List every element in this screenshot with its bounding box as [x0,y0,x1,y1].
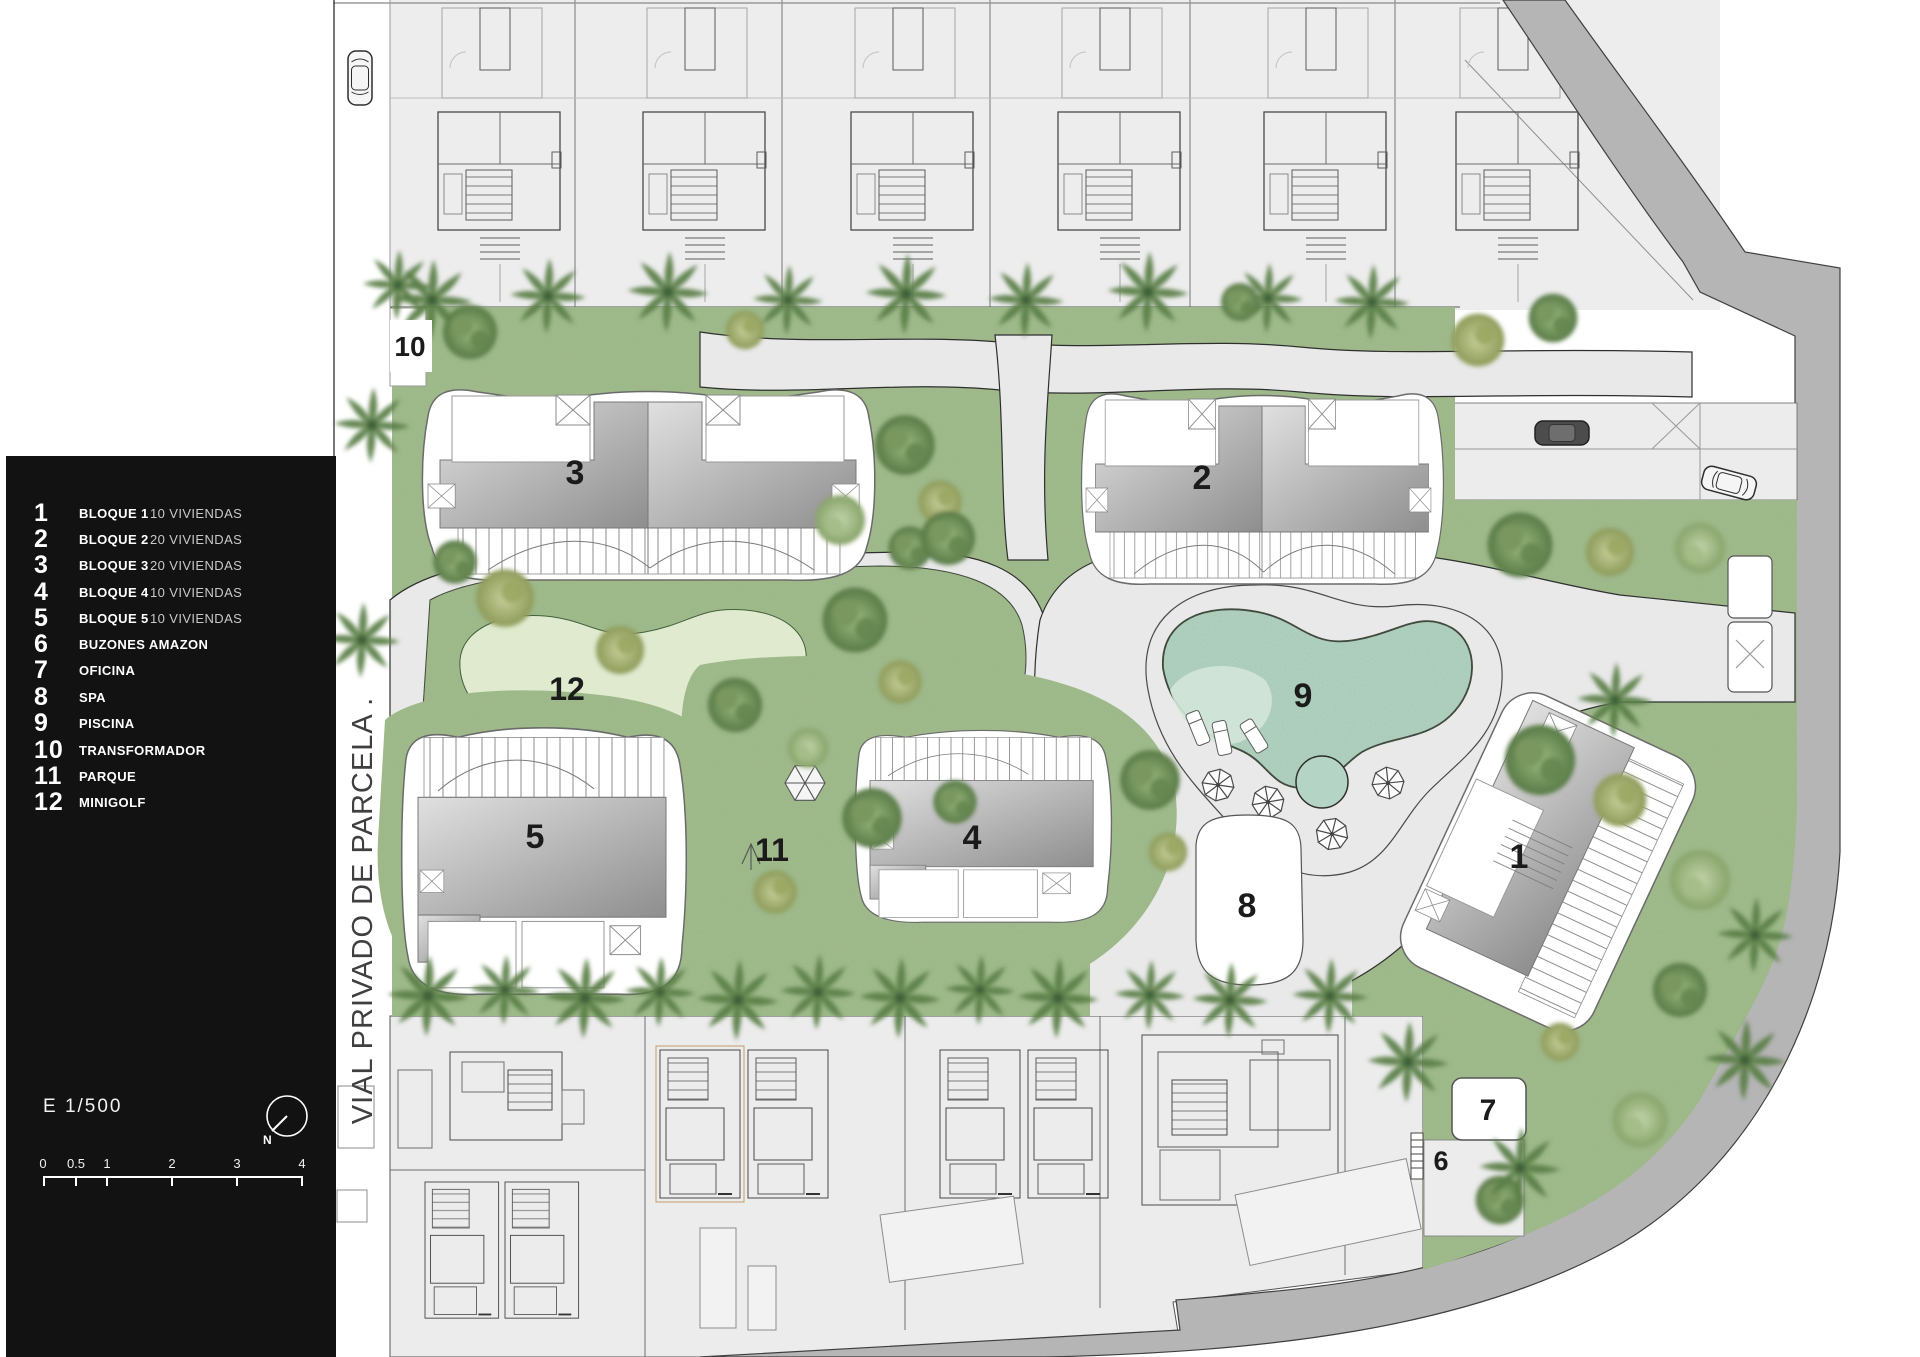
plan-label-transformador: 10 [394,331,425,362]
plan-label-block-3: 3 [566,454,585,492]
legend-label: BUZONES AMAZON [79,637,208,652]
legend-label: TRANSFORMADOR [79,743,206,758]
plan-label-parque: 11 [755,832,789,868]
legend-num: 12 [34,790,79,815]
legend-label: PISCINA [79,716,150,731]
legend-num: 1 [34,501,79,526]
plan-label-piscina: 9 [1294,677,1313,715]
legend-num: 3 [34,553,79,578]
scale-tick-label: 1 [94,1156,120,1171]
legend-num: 11 [34,764,79,789]
entrance-gate [1728,556,1772,692]
scale-text: E 1/500 [43,1096,123,1118]
plan-label-block-5: 5 [526,818,545,856]
legend-item-buzones: 6BUZONES AMAZON [34,631,208,658]
site-plan-page: 1 2 3 4 5 6 7 8 9 10 11 12 VIAL PRIVADO … [0,0,1920,1357]
legend-item-bloque-5: 5BLOQUE 510 VIVIENDAS [34,605,242,632]
plan-label-minigolf: 12 [549,671,585,707]
scale-bar: 0 0.5 1 2 3 4 [43,1156,311,1190]
plan-label-block-2: 2 [1193,459,1212,497]
legend-item-bloque-4: 4BLOQUE 410 VIVIENDAS [34,579,242,606]
building-block-5 [402,728,687,995]
legend-item-minigolf: 12MINIGOLF [34,789,150,816]
plan-label-block-4: 4 [963,819,982,857]
legend-item-piscina: 9PISCINA [34,710,150,737]
legend-item-parque: 11PARQUE [34,763,150,790]
legend-item-bloque-2: 2BLOQUE 220 VIVIENDAS [34,526,242,553]
legend-detail: 20 VIVIENDAS [150,532,242,547]
legend-num: 6 [34,632,79,657]
scale-tick-label: 3 [224,1156,250,1171]
building-block-2 [1082,394,1444,584]
plan-label-block-1: 1 [1510,838,1529,876]
legend-detail: 10 VIVIENDAS [150,611,242,626]
legend-num: 7 [34,658,79,683]
legend-label: OFICINA [79,663,150,678]
scale-tick-label: 0 [30,1156,56,1171]
plan-label-buzones: 6 [1433,1146,1448,1176]
legend-panel: 1BLOQUE 110 VIVIENDAS 2BLOQUE 220 VIVIEN… [6,456,336,1357]
legend-label: SPA [79,690,150,705]
legend-detail: 10 VIVIENDAS [150,506,242,521]
legend-item-oficina: 7OFICINA [34,657,150,684]
legend-detail: 20 VIVIENDAS [150,558,242,573]
car-icon [1535,421,1589,445]
scale-tick-label: 2 [159,1156,185,1171]
legend-num: 9 [34,711,79,736]
legend-num: 10 [34,738,79,763]
legend-num: 5 [34,606,79,631]
building-block-3 [422,390,874,580]
kids-pool [1296,756,1348,808]
legend-num: 8 [34,685,79,710]
street-label-text: VIAL PRIVADO DE PARCELA . [348,696,381,1123]
plan-label-oficina: 7 [1480,1094,1497,1127]
north-letter: N [263,1133,272,1147]
car-icon [348,51,372,105]
scale-tick-label: 0.5 [63,1156,89,1171]
legend-label: BLOQUE 1 [79,506,150,521]
legend-item-bloque-3: 3BLOQUE 320 VIVIENDAS [34,552,242,579]
legend-label: MINIGOLF [79,795,150,810]
legend-label: BLOQUE 5 [79,611,150,626]
north-compass-icon: N [253,1088,317,1154]
scale-tick-label: 4 [289,1156,315,1171]
legend-item-spa: 8SPA [34,684,150,711]
legend-label: BLOQUE 3 [79,558,150,573]
legend-num: 2 [34,527,79,552]
legend-detail: 10 VIVIENDAS [150,585,242,600]
scale-bar-line [43,1176,303,1178]
street-label: VIAL PRIVADO DE PARCELA . [337,745,391,1075]
legend-label: PARQUE [79,769,150,784]
legend-num: 4 [34,580,79,605]
legend-item-transformador: 10TRANSFORMADOR [34,737,206,764]
legend-item-bloque-1: 1BLOQUE 110 VIVIENDAS [34,500,242,527]
plan-label-spa: 8 [1238,887,1257,925]
legend-label: BLOQUE 2 [79,532,150,547]
legend-label: BLOQUE 4 [79,585,150,600]
